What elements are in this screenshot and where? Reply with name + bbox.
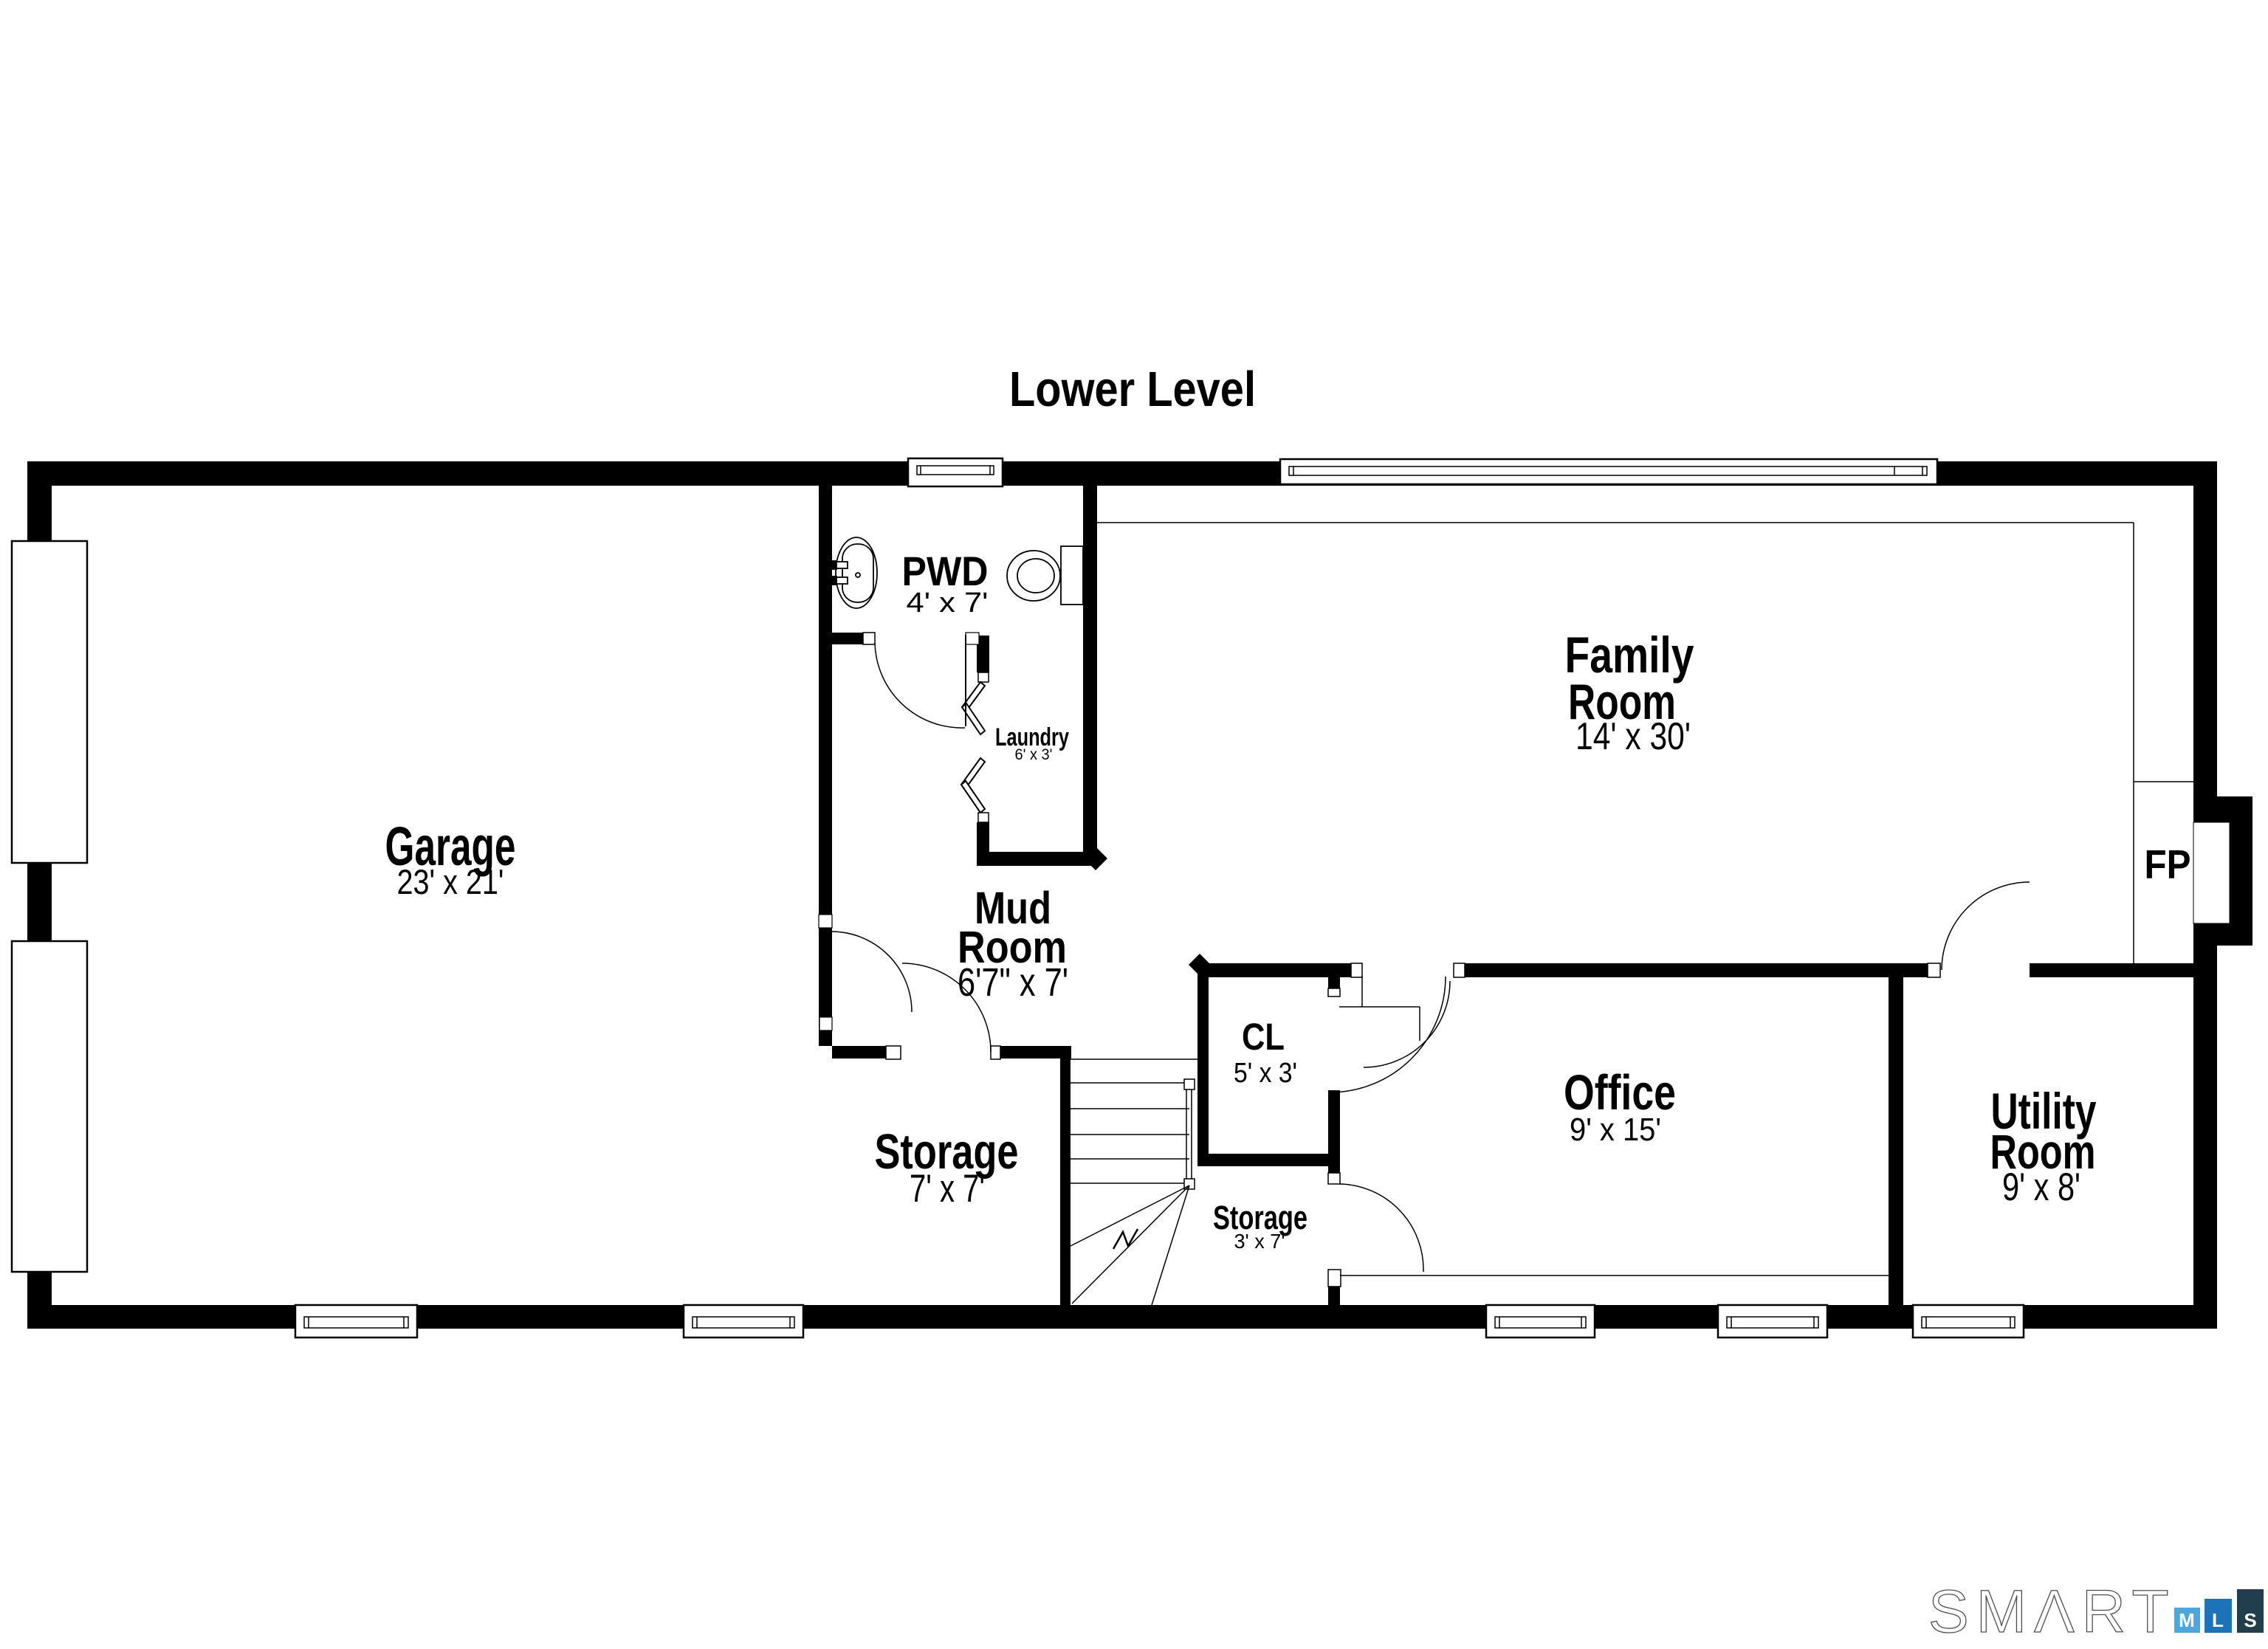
svg-text:4' x 7': 4' x 7'	[907, 588, 989, 619]
svg-text:6' x 3': 6' x 3'	[1015, 746, 1053, 763]
svg-text:6'7" x 7': 6'7" x 7'	[958, 960, 1068, 1005]
svg-text:L: L	[2212, 1609, 2224, 1631]
svg-text:S: S	[2244, 1609, 2256, 1631]
svg-text:7' x 7': 7' x 7'	[910, 1167, 985, 1211]
svg-text:CL: CL	[1242, 1016, 1285, 1058]
svg-text:SMΛRT: SMΛRT	[1928, 1578, 2176, 1645]
svg-text:9' x 15': 9' x 15'	[1570, 1112, 1661, 1148]
svg-text:FP: FP	[2145, 841, 2191, 887]
svg-text:9' x 8': 9' x 8'	[2002, 1166, 2080, 1209]
svg-text:14' x 30': 14' x 30'	[1575, 715, 1691, 758]
svg-text:Lower Level: Lower Level	[1009, 362, 1256, 417]
svg-text:5' x 3': 5' x 3'	[1234, 1058, 1297, 1089]
svg-text:3' x 7': 3' x 7'	[1234, 1230, 1285, 1253]
svg-text:M: M	[2179, 1609, 2195, 1631]
svg-text:23' x 21': 23' x 21'	[397, 862, 504, 901]
